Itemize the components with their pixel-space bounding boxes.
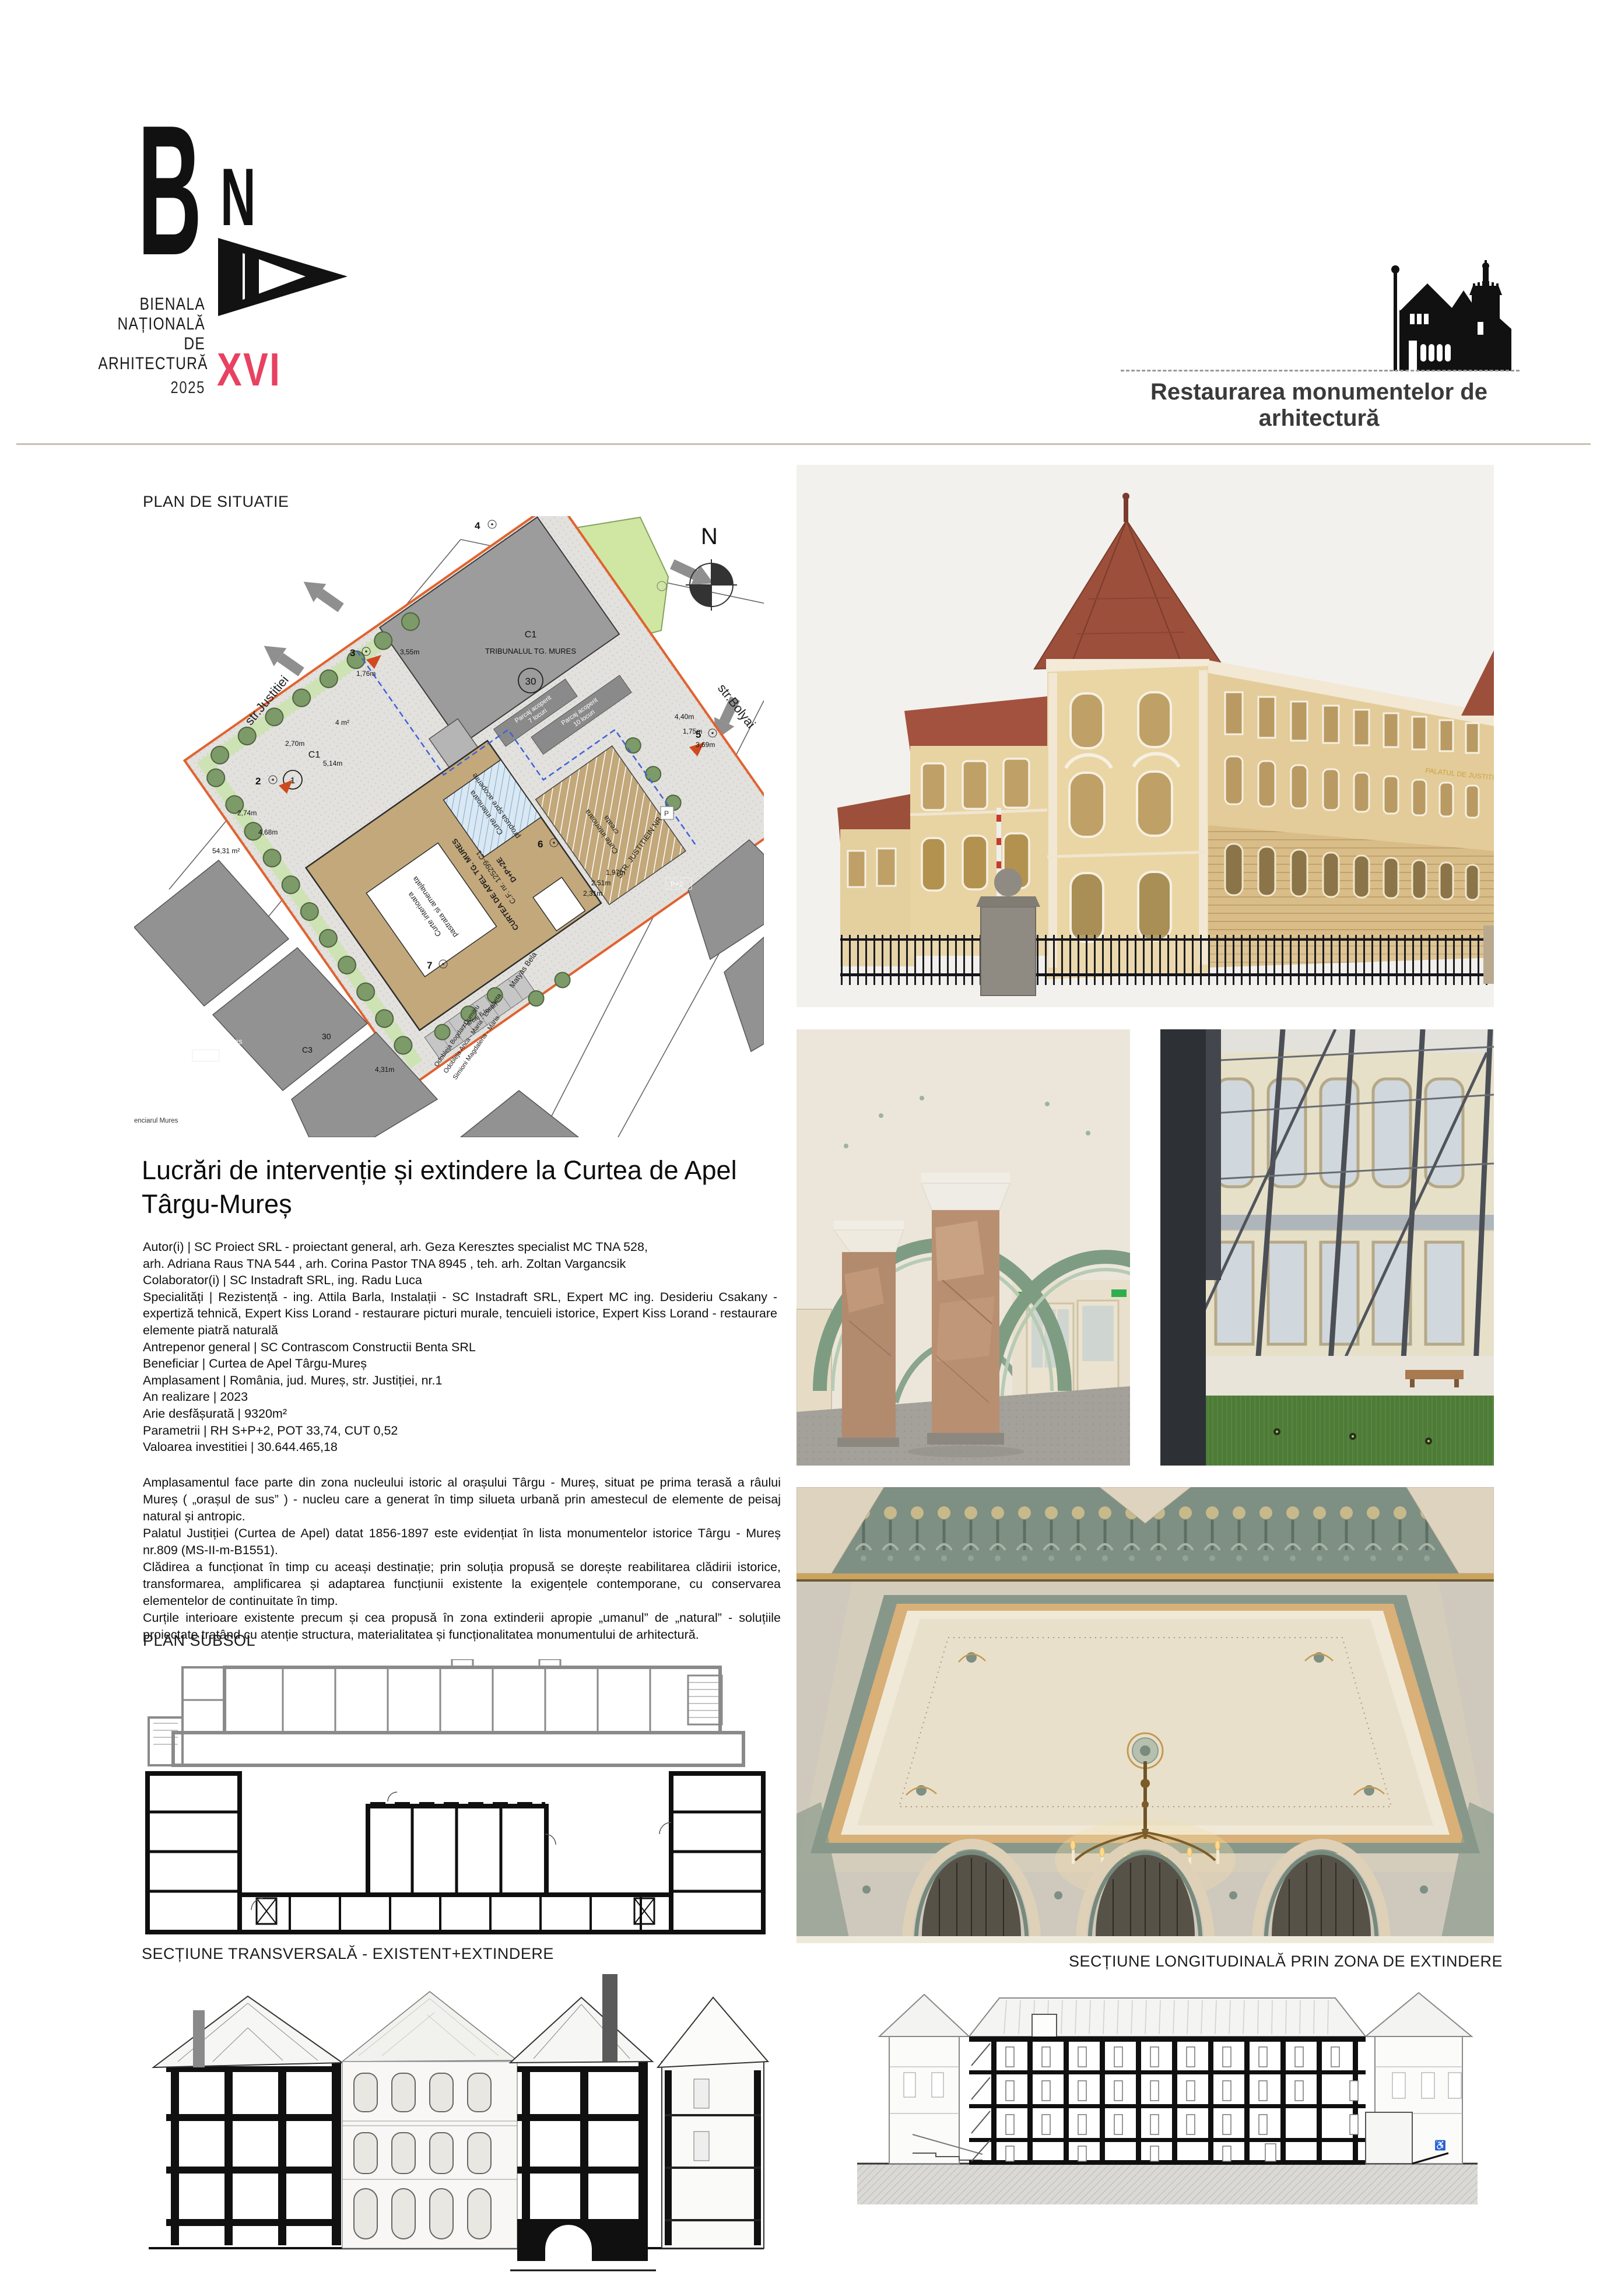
arched-windows	[907, 1844, 1385, 1943]
svg-text:1,76m: 1,76m	[356, 669, 376, 678]
logo-line-1: BIENALA	[98, 295, 205, 314]
photo-facade-exterior: PALATUL DE JUSTITIE	[797, 465, 1494, 1007]
logo-letter-a-icon	[218, 238, 348, 316]
site-plan-label: PLAN DE SITUATIE	[143, 493, 289, 511]
svg-text:2,31m: 2,31m	[583, 889, 602, 898]
header-divider	[16, 443, 1591, 445]
left-cut	[166, 2062, 341, 2245]
p1-label: P+1	[197, 1052, 210, 1060]
logo-line-2: NAȚIONALĂ	[98, 314, 205, 334]
penitenciar-label: Penitenciarul Mures	[178, 1037, 242, 1046]
svg-text:1,75m: 1,75m	[683, 727, 702, 735]
logo-year: 2025	[98, 378, 205, 398]
main-c1: C1	[308, 750, 321, 760]
logo-edition-xvi: XVI	[217, 343, 281, 397]
svg-text:4,68m: 4,68m	[258, 828, 278, 836]
svg-text:2,74m: 2,74m	[237, 809, 257, 817]
svg-text:3,69m: 3,69m	[696, 741, 715, 749]
logo-line-3: DE	[98, 334, 205, 354]
svg-text:54,31 m²: 54,31 m²	[212, 847, 240, 855]
new-extension-walls	[149, 1659, 743, 1765]
wheelchair-icon: ♿	[1434, 2140, 1446, 2151]
tribunal-no: 30	[525, 676, 536, 687]
existing-walls	[148, 1773, 763, 1932]
section-transversal-label: SECȚIUNE TRANSVERSALĂ - EXISTENT+EXTINDE…	[142, 1945, 554, 1963]
svg-text:1,97m: 1,97m	[606, 868, 625, 877]
pt7: 7	[427, 960, 432, 971]
p-label: P	[664, 809, 669, 818]
project-title: Lucrări de intervenție și extindere la C…	[142, 1154, 771, 1221]
svg-text:4,31m: 4,31m	[375, 1065, 394, 1074]
project-description: Amplasamentul face parte din zona nucleu…	[143, 1474, 781, 1643]
basement-plan-drawing	[137, 1659, 774, 1939]
section-longitudinal-drawing: ♿	[857, 1978, 1478, 2206]
project-credits: Autor(i) | SC Proiect SRL - proiectant g…	[143, 1239, 777, 1456]
no30-label: 30	[322, 1032, 331, 1041]
tribunal-c1: C1	[525, 630, 537, 640]
poster-page: B N BIENALA NAȚIONALĂ DE ARHITECTURĂ 202…	[0, 0, 1607, 2296]
compass: N	[686, 524, 737, 611]
svg-text:3,55m: 3,55m	[400, 648, 419, 656]
pt4: 4	[475, 520, 480, 531]
section-transversal-drawing	[137, 1974, 776, 2274]
c3-label: C3	[302, 1045, 313, 1054]
tribunal-name: TRIBUNALUL TG. MURES	[485, 647, 576, 656]
pt3: 3	[350, 647, 355, 658]
logo-text-bienala: BIENALA NAȚIONALĂ DE ARHITECTURĂ	[98, 295, 205, 374]
photo-ceiling-hall	[797, 1487, 1494, 1943]
site-plan-drawing: N	[134, 516, 764, 1137]
logo-line-4: ARHITECTURĂ	[98, 354, 205, 374]
svg-text:4,40m: 4,40m	[675, 713, 694, 721]
plan-subsol-label: PLAN SUBSOL	[143, 1632, 255, 1650]
svg-text:4 m²: 4 m²	[335, 718, 349, 727]
p2-label: P+2	[671, 880, 683, 888]
section-longitudinal-label: SECȚIUNE LONGITUDINALĂ PRIN ZONA DE EXTI…	[980, 1953, 1592, 1971]
pt6: 6	[538, 839, 543, 850]
photo-interior-arcade	[797, 1029, 1130, 1466]
category-divider-dashed	[1121, 370, 1520, 371]
compass-n: N	[701, 524, 718, 549]
stair-flights	[971, 2043, 990, 2161]
photo-courtyard-glass	[1160, 1029, 1494, 1466]
right-cut	[517, 2062, 648, 2245]
logo-letter-b: B	[138, 98, 202, 283]
door-swings	[251, 1792, 671, 1910]
svg-text:2,70m: 2,70m	[285, 739, 304, 748]
svg-text:2,51m: 2,51m	[591, 879, 610, 887]
svg-text:5,14m: 5,14m	[323, 759, 342, 767]
penitenciar2-label: enciarul Mures	[134, 1117, 178, 1124]
category-label: Restaurarea monumentelor de arhitectură	[1115, 379, 1523, 432]
monument-silhouette-icon	[1387, 260, 1511, 372]
pt2: 2	[255, 776, 261, 787]
logo-letter-n: N	[220, 156, 256, 238]
